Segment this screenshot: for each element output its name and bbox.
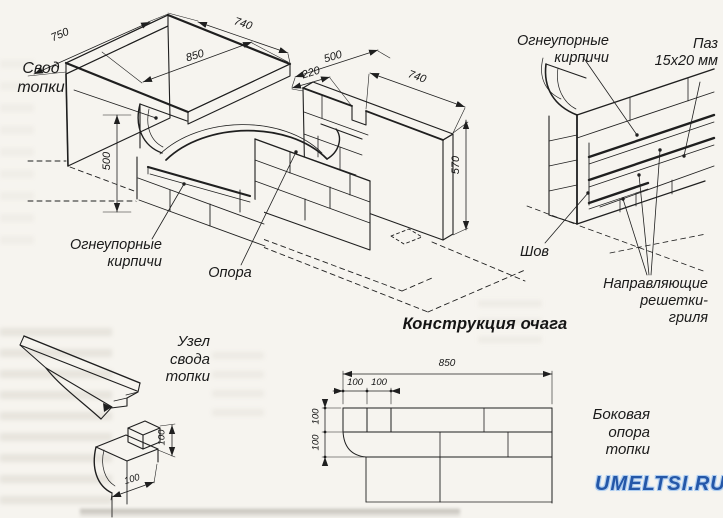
vault-label: Свод топки [8,60,74,98]
drawing-title: Конструкция очага [388,315,582,334]
dim-570: 570 [450,148,462,182]
plan-drawing [322,371,552,503]
page-edge-shadow [80,509,460,518]
node-label: Узел свода топки [146,333,210,386]
firebricks-label-main: Огнеупорные кирпичи [38,237,162,271]
leader-lines-detail [542,57,700,275]
support-label: Опора [200,265,260,282]
scanned-construction-drawing-page: Свод топки Огнеупорные кирпичи Опора Огн… [0,0,723,518]
grill-guides-label: Направляющие решетки- гриля [590,276,708,327]
seam-label: Шов [520,244,568,261]
plan-dim-100-left-b: 100 [311,426,322,460]
dim-500-left: 500 [101,144,113,178]
plan-dim-850: 850 [430,358,464,369]
side-support-label: Боковая опора топки [578,406,650,459]
firebox-arch [138,104,362,160]
site-watermark: UMELTSI.RU [595,473,723,496]
left-wall [66,26,170,166]
plan-dim-100-top-b: 100 [362,377,396,388]
groove-label: Паз 15х20 мм [638,36,718,70]
node-dim-100-vertical: 100 [157,421,168,455]
firebricks-label-detail: Огнеупорные кирпичи [492,33,609,67]
